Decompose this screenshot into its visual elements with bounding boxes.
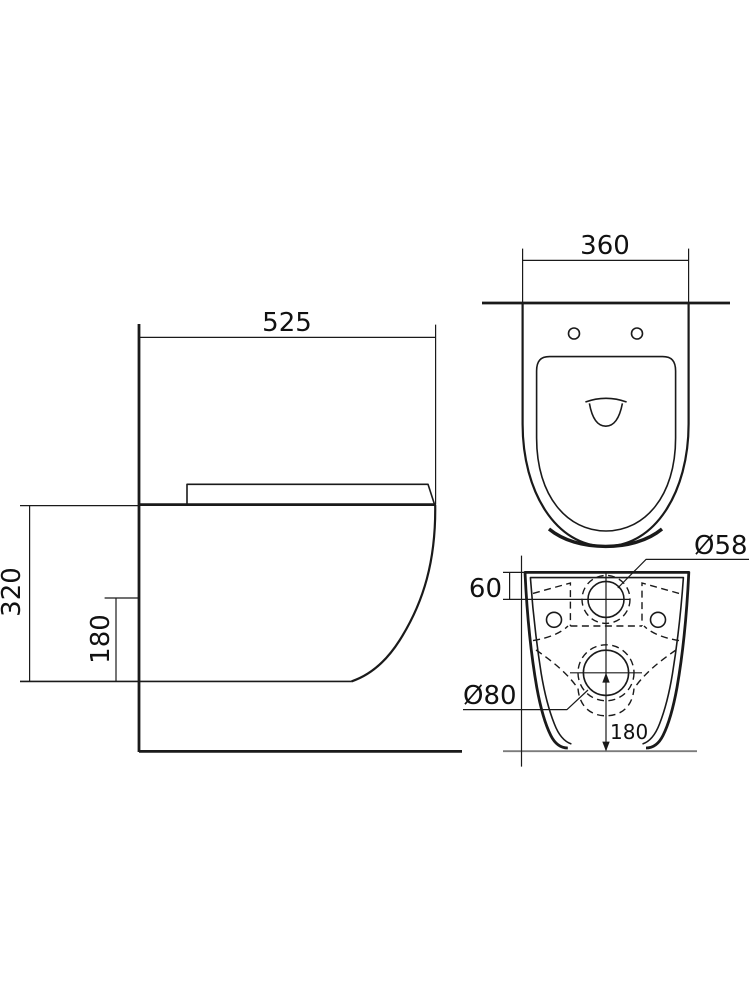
dim-180-side-label: 180: [86, 614, 116, 664]
dim-180-rear-arrow-down: [602, 742, 609, 752]
plan-flush-arc: [585, 398, 626, 402]
dim-320-label: 320: [0, 567, 27, 617]
plan-seat-hole-right: [632, 328, 643, 339]
dim-180-rear-label: 180: [610, 720, 648, 744]
dim-525-label: 525: [262, 308, 312, 338]
rear-body-inner-line: [530, 578, 683, 744]
plan-flush-cup: [589, 403, 622, 426]
drawing-svg: 525 320 180 360: [0, 0, 750, 1000]
dim-60-label: 60: [469, 574, 502, 604]
side-view: 525 320 180: [0, 308, 462, 752]
rear-fixing-hole-right: [651, 612, 666, 627]
side-seat-outline: [187, 484, 435, 504]
rear-fixing-hole-left: [547, 612, 562, 627]
dim-360-label: 360: [580, 231, 630, 261]
rear-view: 60 Ø58 Ø80 180: [463, 531, 749, 767]
technical-drawing-canvas: 525 320 180 360: [0, 0, 750, 1000]
dim-outlet-diameter-label: Ø80: [463, 681, 517, 711]
plan-seat-hole-left: [569, 328, 580, 339]
plan-body-outline: [523, 303, 689, 546]
side-front-profile: [352, 505, 436, 682]
dim-inlet-diameter-label: Ø58: [694, 531, 748, 561]
dim-180-rear-arrow-up: [602, 673, 609, 683]
plan-inner-rim: [537, 357, 676, 531]
plan-view: 360: [482, 231, 730, 546]
